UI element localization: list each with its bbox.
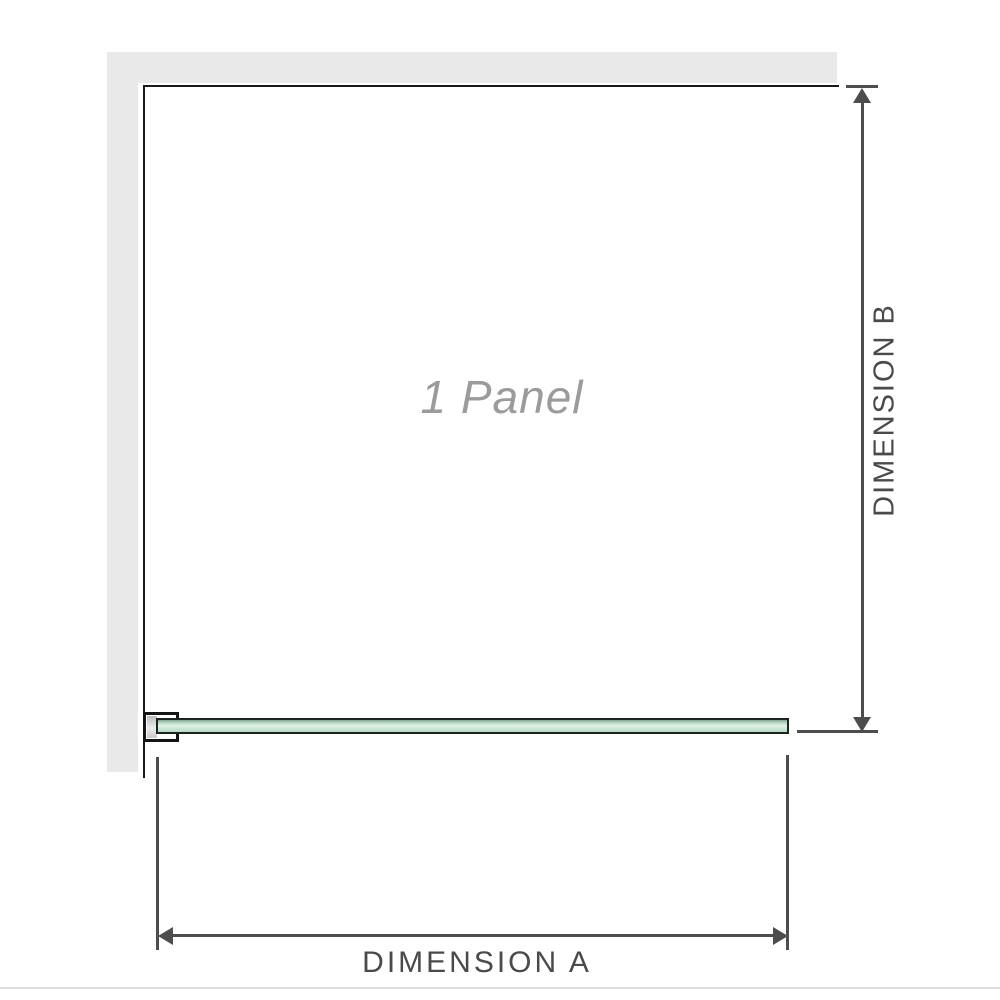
glass-panel-bar	[156, 718, 789, 734]
dimension-a-line	[166, 934, 780, 937]
dimension-a-arrowhead-left-icon	[158, 927, 173, 945]
dimension-a-arrowhead-right-icon	[773, 927, 788, 945]
dimension-b-line	[861, 97, 864, 721]
dimension-a-tick-left	[156, 757, 159, 950]
wall-left-section	[107, 52, 138, 772]
bottom-divider	[0, 987, 1000, 989]
dimension-b-arrowhead-up-icon	[853, 88, 871, 103]
wall-top-section	[107, 52, 837, 83]
dimension-b-arrowhead-down-icon	[853, 717, 871, 732]
dimension-a-tick-right	[786, 755, 789, 950]
shower-panel-dimension-diagram: 1 Panel DIMENSION B DIMENSION A	[0, 0, 1000, 1000]
panel-area-outline	[143, 85, 839, 778]
dimension-b-label: DIMENSION B	[869, 303, 902, 517]
panel-count-label: 1 Panel	[420, 370, 583, 424]
dimension-a-label: DIMENSION A	[362, 946, 592, 980]
